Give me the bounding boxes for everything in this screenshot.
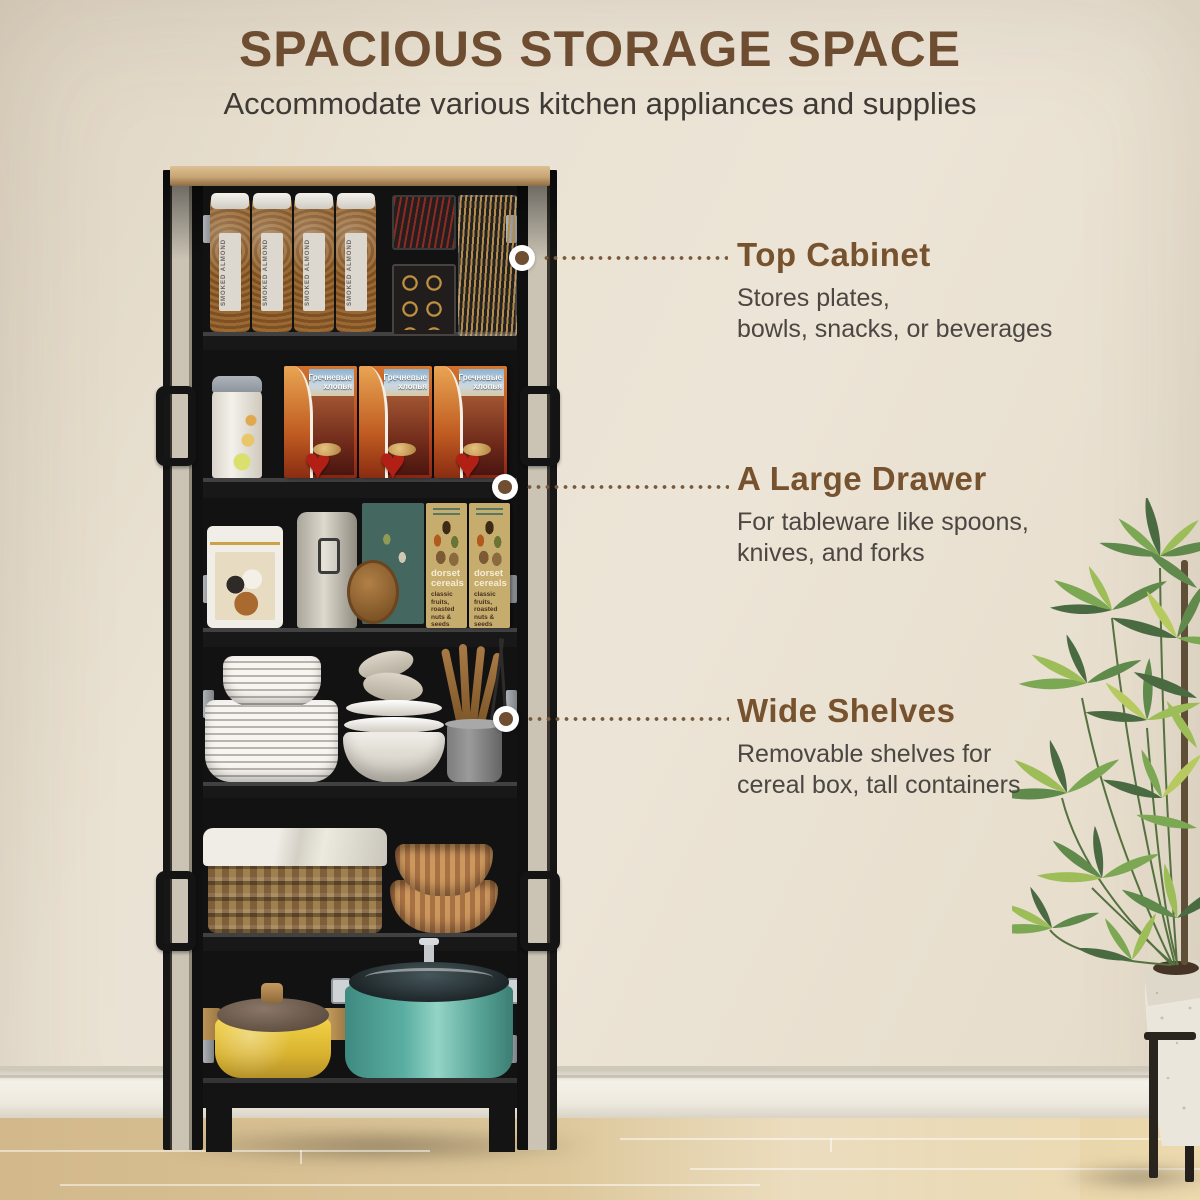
callout-text-line: bowls, snacks, or beverages — [737, 314, 1052, 345]
illustrated-tin — [207, 526, 283, 628]
dorset-name: dorset cereals — [474, 569, 508, 589]
callout-wide-shelves: Wide Shelves Removable shelves for cerea… — [737, 692, 1020, 801]
callout-dot — [492, 474, 518, 500]
callout-text-line: Stores plates, — [737, 283, 1052, 314]
cereal-box: ♥ Гречневыехлопья — [284, 366, 357, 478]
yellow-pot-lid — [217, 998, 329, 1032]
almond-jar: SMOKED ALMOND — [210, 197, 250, 332]
callout-top-cabinet: Top Cabinet Stores plates, bowls, snacks… — [737, 236, 1052, 345]
cabinet-interior: SMOKED ALMOND SMOKED ALMOND SMOKED ALMON… — [203, 186, 517, 1108]
callout-dot — [493, 706, 519, 732]
cereal-box-text: Гречневыехлопья — [459, 373, 503, 391]
plate-stack-large — [205, 700, 338, 782]
cabinet-base-board — [203, 1078, 517, 1108]
plant-leaves — [1012, 498, 1200, 966]
micro-text-lines — [433, 508, 460, 515]
cereal-art — [463, 443, 491, 456]
page-subtitle: Accommodate various kitchen appliances a… — [0, 86, 1200, 122]
tin-illustration — [215, 552, 275, 620]
potted-plant — [1012, 498, 1200, 1200]
floor-plank-seam — [60, 1184, 760, 1186]
callout-title: Top Cabinet — [737, 236, 1052, 274]
cereal-box-text: Гречневыехлопья — [384, 373, 428, 391]
almond-jar: SMOKED ALMOND — [336, 197, 376, 332]
shelf-board — [203, 782, 517, 798]
cabinet-right-open-door — [517, 170, 557, 1150]
cereal-art — [388, 443, 416, 456]
shelf-board — [203, 478, 517, 498]
cabinet-left-open-door — [163, 170, 203, 1150]
mixing-bowl — [343, 732, 445, 782]
door-handle — [156, 386, 196, 466]
dorset-description: classic fruits, roasted nuts & seeds — [474, 591, 508, 628]
cabinet-leg — [206, 1108, 232, 1152]
callout-text-line: Removable shelves for — [737, 739, 1020, 770]
round-wood-board — [347, 560, 399, 624]
page-title: SPACIOUS STORAGE SPACE — [0, 20, 1200, 78]
cereal-art — [313, 443, 341, 456]
dorset-cereals-box: dorset cereals classic fruits, roasted n… — [426, 503, 467, 628]
callout-title: A Large Drawer — [737, 460, 1029, 498]
callout-dotted-line — [525, 485, 729, 489]
callout-text-line: cereal box, tall containers — [737, 770, 1020, 801]
product-infographic: SPACIOUS STORAGE SPACE Accommodate vario… — [0, 0, 1200, 1200]
floor-light-reflection — [560, 1118, 1080, 1200]
dorset-description: classic fruits, roasted nuts & seeds — [431, 591, 465, 628]
callout-title: Wide Shelves — [737, 692, 1020, 730]
callout-text-line: For tableware like spoons, — [737, 507, 1029, 538]
yellow-pot-knob — [261, 983, 283, 1003]
plate-stack-small — [223, 656, 321, 706]
spaghetti-container — [458, 195, 517, 336]
callout-dot — [509, 245, 535, 271]
almond-jar: SMOKED ALMOND — [294, 197, 334, 332]
callout-text-line: knives, and forks — [737, 538, 1029, 569]
almond-jar: SMOKED ALMOND — [252, 197, 292, 332]
stockpot-glass-lid — [349, 962, 509, 1002]
door-handle — [156, 871, 196, 951]
cereal-box: ♥ Гречневыехлопья — [434, 366, 507, 478]
stacked-bowl-rim — [346, 700, 442, 716]
jar-label: SMOKED ALMOND — [303, 233, 325, 311]
dorset-cereals-box: dorset cereals classic fruits, roasted n… — [469, 503, 510, 628]
jar-label: SMOKED ALMOND — [345, 233, 367, 311]
floor-plank-seam — [830, 1138, 832, 1152]
cereal-box-text: Гречневыехлопья — [309, 373, 353, 391]
cabinet-wood-top — [170, 166, 550, 186]
jar-label: SMOKED ALMOND — [219, 233, 241, 311]
cabinet-leg — [489, 1108, 515, 1152]
micro-text-lines — [476, 508, 503, 515]
callout-large-drawer: A Large Drawer For tableware like spoons… — [737, 460, 1029, 569]
jar-label: SMOKED ALMOND — [261, 233, 283, 311]
shelf-board — [203, 933, 517, 951]
cereal-box: ♥ Гречневыехлопья — [359, 366, 432, 478]
floor-plank-seam — [300, 1150, 302, 1164]
callout-dotted-line — [526, 717, 729, 721]
clamp-canister — [297, 512, 357, 628]
seed-leaf-art — [469, 519, 510, 567]
door-handle — [520, 386, 560, 466]
stacked-bowl-rim — [344, 717, 444, 733]
shelf-board — [203, 628, 517, 647]
dorset-name: dorset cereals — [431, 569, 465, 589]
pasta-rings-container — [392, 264, 456, 336]
pasta-container — [392, 195, 456, 250]
white-canister — [212, 388, 262, 478]
wicker-basket — [208, 836, 382, 933]
callout-dotted-line — [542, 256, 728, 260]
door-handle — [520, 871, 560, 951]
utensil-crock — [447, 724, 502, 782]
seed-leaf-art — [426, 519, 467, 567]
